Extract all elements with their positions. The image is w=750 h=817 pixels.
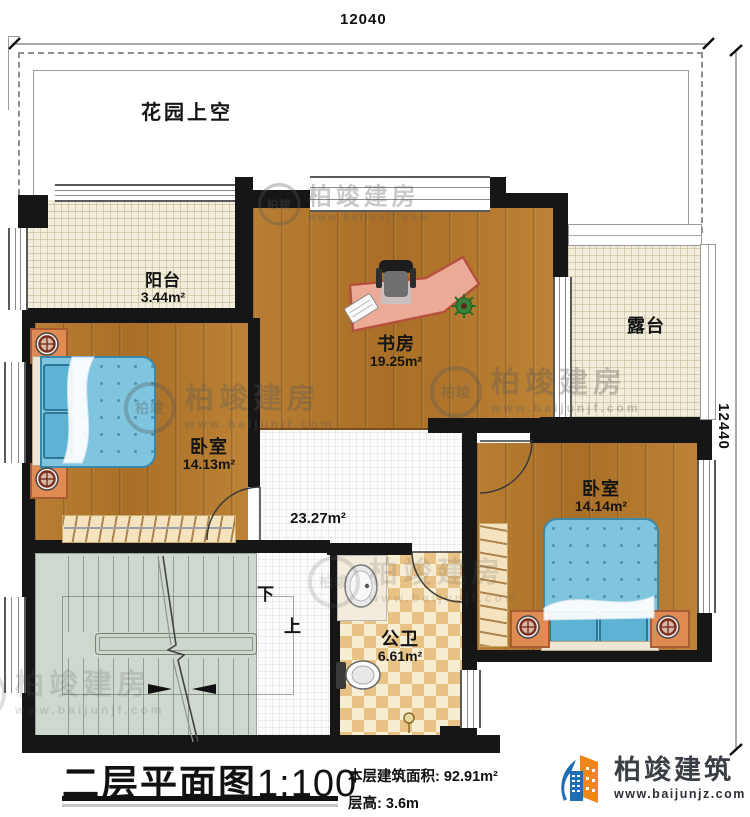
pillow	[549, 611, 598, 643]
dimension-top-label: 12040	[340, 11, 387, 28]
room-name: 露台	[627, 316, 665, 336]
room-label-balcony: 阳台 3.44m²	[141, 271, 185, 306]
window-balcony-left	[8, 228, 28, 310]
stair-down-label: 下	[257, 580, 274, 605]
nightstand	[510, 610, 550, 648]
room-area: 3.44m²	[141, 290, 185, 306]
garden-outline-corner	[8, 36, 20, 37]
room-name: 阳台	[141, 271, 185, 290]
room-label-bedroom-left: 卧室 14.13m²	[183, 437, 235, 473]
wall-segment	[22, 735, 500, 753]
sliding-door-study-terrace	[553, 277, 572, 417]
wall-segment	[22, 308, 248, 323]
garden-dashed-left	[18, 52, 20, 195]
room-area: 19.25m²	[370, 354, 422, 370]
stair-up-label: 上	[284, 612, 301, 637]
room-label-hall-area: 23.27m²	[290, 511, 346, 528]
window-bedroom-left	[4, 362, 26, 463]
wall-segment	[428, 418, 540, 433]
wall-segment	[530, 433, 712, 443]
room-label-terrace: 露台	[627, 316, 665, 336]
garden-label: 花园上空	[141, 96, 233, 125]
wardrobe-rail	[64, 527, 232, 529]
wall-segment	[490, 177, 506, 194]
floor-area-value: 92.91m²	[444, 769, 498, 785]
room-name: 卧室	[575, 479, 627, 499]
company-logo: 柏竣建筑 www.baijunjz.com	[556, 751, 746, 807]
wall-segment	[697, 420, 712, 460]
nightstand	[650, 610, 690, 648]
garden-dashed-right	[701, 52, 703, 233]
terrace-rail-right	[700, 244, 716, 420]
window-staircase-left	[4, 597, 26, 693]
window-balcony-top	[55, 184, 235, 202]
garden-inner-right	[688, 70, 689, 228]
wall-segment	[18, 195, 48, 228]
terrace-rail-top	[568, 224, 702, 246]
room-study-floor	[253, 207, 553, 430]
stair-handrail	[95, 633, 257, 655]
title-underline	[62, 796, 338, 801]
wardrobe-right-bedroom	[479, 523, 508, 647]
wall-segment	[553, 193, 568, 277]
window-bathroom	[460, 670, 481, 728]
room-label-bedroom-right: 卧室 14.14m²	[575, 479, 627, 515]
room-label-bathroom: 公卫 6.61m²	[378, 629, 422, 665]
wall-segment	[477, 650, 712, 662]
garden-dashed-top	[18, 52, 703, 54]
room-area: 6.61m²	[378, 649, 422, 665]
floor-height-value: 3.6m	[386, 796, 419, 812]
window-bedroom-right	[697, 460, 716, 613]
floorplan-page: 花园上空 12040 12440	[0, 0, 750, 817]
room-name: 卧室	[183, 437, 235, 457]
room-area: 23.27m²	[290, 511, 346, 528]
room-area: 14.14m²	[575, 499, 627, 515]
bed-headboard	[541, 641, 659, 651]
room-name: 书房	[370, 334, 422, 354]
room-area: 14.13m²	[183, 457, 235, 473]
company-name: 柏竣建筑	[614, 757, 746, 784]
garden-inner-top	[33, 70, 689, 71]
pillow	[599, 611, 648, 643]
wall-segment	[248, 318, 260, 487]
floor-height-label: 层高:	[348, 796, 382, 812]
garden-outline-left-outer	[8, 36, 9, 110]
room-label-study: 书房 19.25m²	[370, 334, 422, 370]
wardrobe-left-bedroom	[62, 515, 236, 543]
nightstand	[30, 463, 68, 499]
title-underline-2	[62, 804, 338, 807]
room-balcony-floor	[26, 200, 235, 310]
pillow	[43, 364, 73, 411]
garden-inner-left	[33, 70, 34, 195]
bathroom-counter	[337, 555, 387, 621]
room-name: 公卫	[378, 629, 422, 649]
room-hall-floor	[258, 428, 462, 552]
company-url: www.baijunjz.com	[614, 787, 746, 801]
floor-area-info: 本层建筑面积: 92.91m²	[348, 765, 498, 786]
dimension-right-label: 12440	[715, 403, 732, 450]
pillow	[43, 412, 73, 459]
floor-area-label: 本层建筑面积:	[348, 769, 440, 785]
floor-height-info: 层高: 3.6m	[348, 792, 419, 813]
study-hall-open-edge	[253, 428, 430, 430]
company-logo-icon	[556, 751, 606, 807]
wall-segment	[240, 190, 310, 208]
window-study-top	[310, 176, 490, 212]
